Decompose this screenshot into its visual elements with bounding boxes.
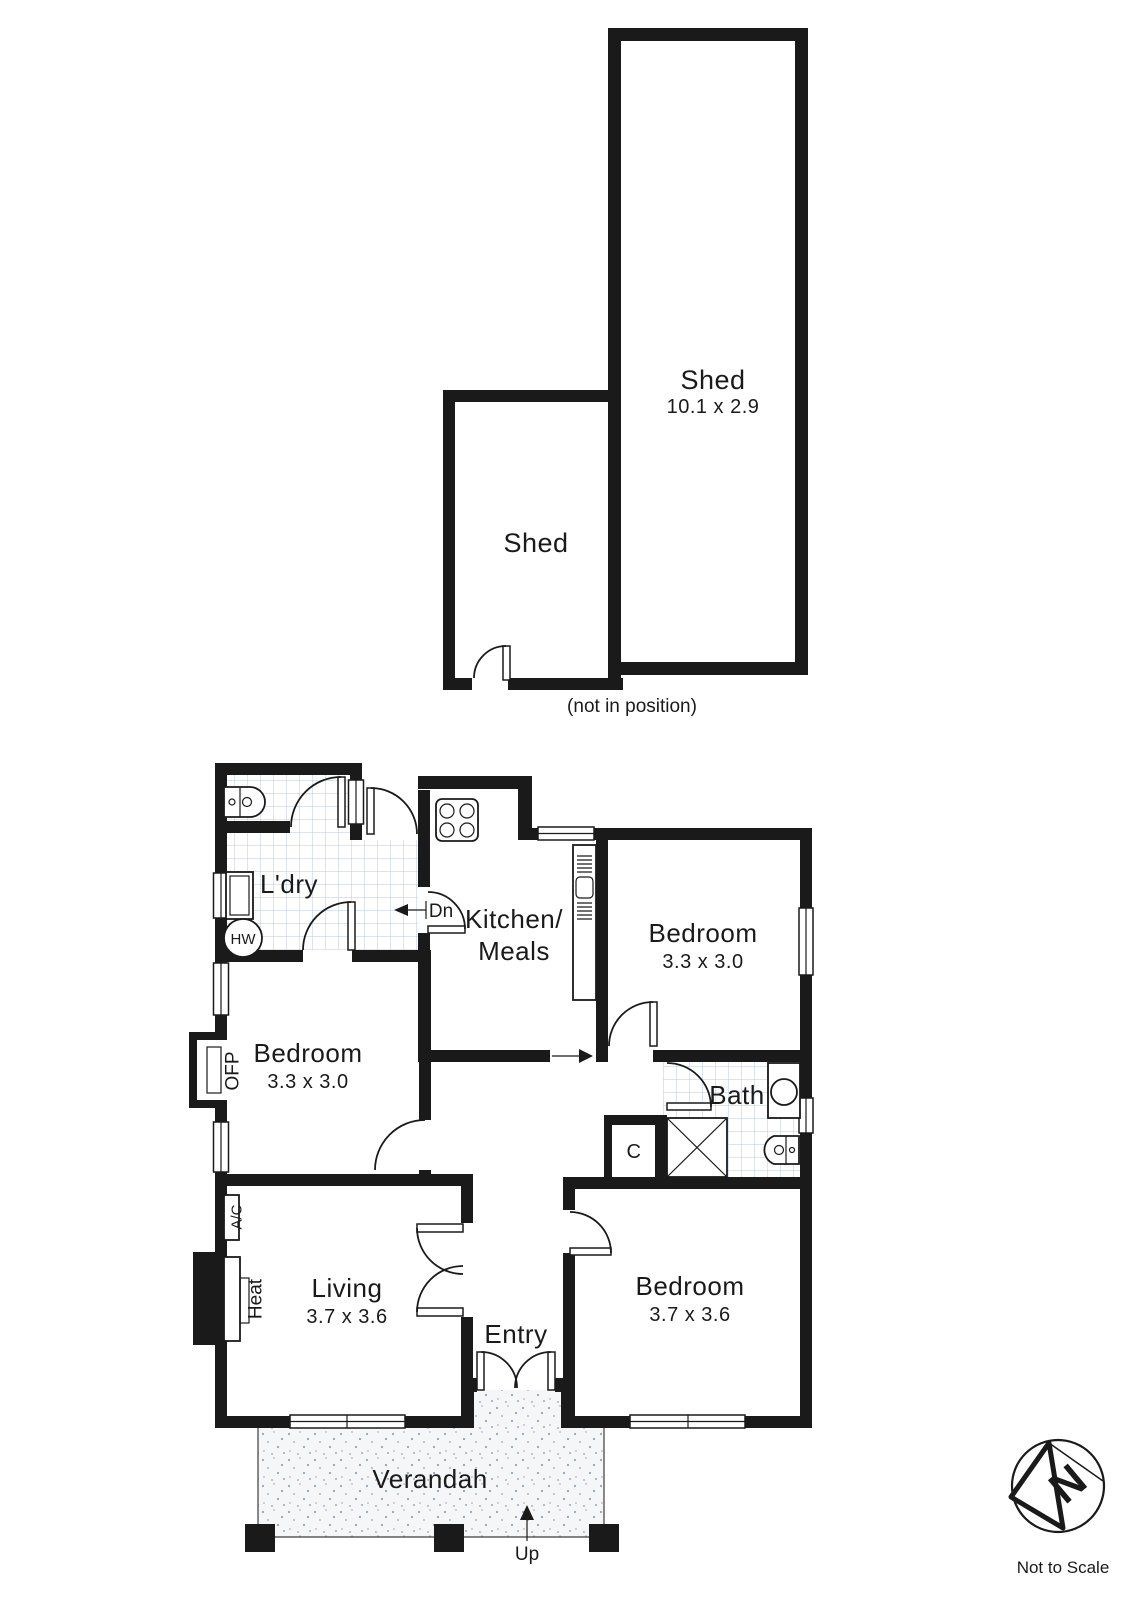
heater: Heat <box>224 1257 267 1341</box>
verandah-label: Verandah <box>372 1464 487 1494</box>
living-window <box>290 1415 405 1428</box>
heater-label: Heat <box>246 1278 267 1319</box>
bedroom-front-label: Bedroom <box>636 1271 745 1301</box>
air-conditioner: A/C <box>224 1195 246 1240</box>
fireplace-label: OFP <box>223 1051 244 1090</box>
bedroom-middle-window-lower <box>214 1122 229 1172</box>
bath-label: Bath <box>709 1080 765 1110</box>
living-dims: 3.7 x 3.6 <box>306 1306 387 1328</box>
bedroom-front-door <box>570 1212 611 1255</box>
compass: N Not to Scale <box>1011 1440 1109 1577</box>
bedroom-middle-label: Bedroom <box>254 1038 363 1068</box>
rear-porch-window <box>349 780 364 824</box>
laundry-label: L'dry <box>260 869 318 899</box>
shed-small: Shed <box>443 390 623 690</box>
bedroom-middle-door <box>375 1120 425 1170</box>
bedroom-rear-door <box>609 1002 657 1046</box>
wc-toilet <box>224 787 265 817</box>
hot-water-label: HW <box>231 931 257 948</box>
air-conditioner-label: A/C <box>229 1204 246 1229</box>
shed-door-leaf <box>503 646 510 680</box>
stairs-down-label: Dn <box>429 901 453 922</box>
kitchen-label-line2: Meals <box>478 936 550 966</box>
laundry-tiles-lower <box>350 840 418 950</box>
bedroom-front-window <box>630 1415 745 1428</box>
shed-small-label: Shed <box>503 528 568 558</box>
back-door <box>367 788 417 834</box>
shower <box>667 1118 727 1177</box>
bath-vanity <box>768 1063 800 1118</box>
bath-toilet <box>764 1136 799 1164</box>
porch-floor <box>474 1390 561 1428</box>
shed-large-dims: 10.1 x 2.9 <box>667 396 760 418</box>
house: HW <box>189 763 813 1565</box>
bedroom-middle-window-upper <box>214 963 229 1015</box>
steps-up-label: Up <box>515 1544 539 1565</box>
living-french-doors <box>417 1224 463 1316</box>
floorplan-page: Shed 10.1 x 2.9 Shed (not in position) <box>0 0 1132 1600</box>
bath-window <box>799 1098 813 1133</box>
kitchen-window <box>538 827 594 840</box>
bedroom-rear-dims: 3.3 x 3.0 <box>662 951 743 973</box>
shed-large: Shed 10.1 x 2.9 <box>608 28 808 690</box>
shed-large-label: Shed <box>680 365 745 395</box>
shed-position-note: (not in position) <box>567 696 697 717</box>
entry-label: Entry <box>484 1319 547 1349</box>
shed-large-walls <box>608 28 808 690</box>
cooktop <box>436 799 478 841</box>
verandah-post-left <box>245 1524 275 1552</box>
verandah-post-middle <box>434 1524 464 1552</box>
floor-plan-svg: Shed 10.1 x 2.9 Shed (not in position) <box>0 0 1132 1600</box>
shed-door-swing <box>474 646 506 678</box>
compass-north-label: N <box>1040 1455 1096 1513</box>
kitchen-sink-bench <box>573 845 596 1000</box>
right-arrow-icon <box>579 1049 593 1063</box>
hot-water-unit: HW <box>224 919 262 957</box>
bedroom-middle-dims: 3.3 x 3.0 <box>267 1071 348 1093</box>
living-label: Living <box>312 1273 383 1303</box>
bedroom-rear-window <box>799 908 813 975</box>
closet-label: C <box>627 1141 642 1163</box>
bedroom-rear-label: Bedroom <box>649 918 758 948</box>
verandah-post-right <box>589 1524 619 1552</box>
laundry-trough <box>226 872 253 919</box>
hall-direction-arrow <box>552 1049 593 1063</box>
bedroom-front-dims: 3.7 x 3.6 <box>649 1304 730 1326</box>
not-to-scale-label: Not to Scale <box>1017 1558 1110 1577</box>
kitchen-label-line1: Kitchen/ <box>465 904 563 934</box>
fireplace: OFP <box>189 1032 244 1108</box>
entry-double-doors <box>477 1352 555 1390</box>
